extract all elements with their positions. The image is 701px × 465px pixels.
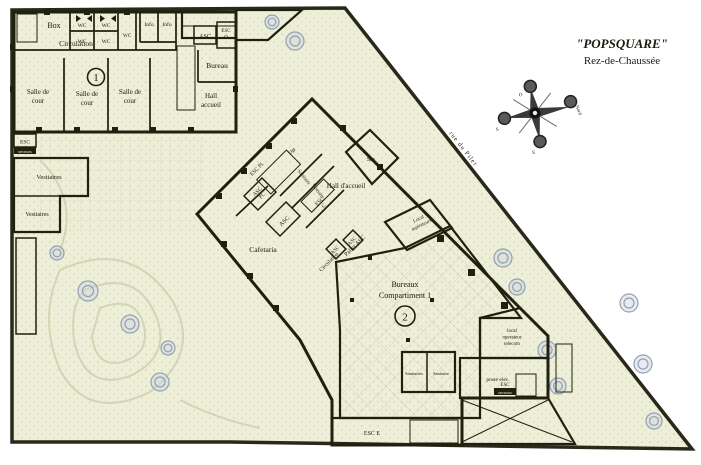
room-label-sas: Sas — [367, 157, 376, 163]
tree — [620, 294, 638, 312]
room-label-vestiaires: Vestiaires — [36, 174, 62, 181]
room-label-secours: secours — [18, 149, 32, 154]
room-label-info: Info — [162, 21, 171, 28]
plaza-paving — [38, 140, 206, 232]
tree — [494, 249, 512, 267]
tree — [161, 341, 175, 355]
room-label-sanitaires: Sanitaires — [405, 371, 423, 376]
tree — [509, 279, 525, 295]
tree — [265, 15, 279, 29]
room-label-hall-daccueil: Hall d'accueil — [327, 182, 365, 190]
compartment-number: 1 — [93, 72, 99, 84]
room-label-esc-e: ESC E — [364, 431, 381, 437]
compass-label-ouest: O — [519, 93, 524, 99]
tree — [78, 281, 98, 301]
room-label-wc: WC — [102, 39, 111, 45]
room-label-box: Box — [47, 21, 60, 30]
compass-label-sud: S — [496, 128, 500, 133]
tree — [151, 373, 169, 391]
room-label-sanitaire: Sanitaire — [433, 371, 449, 376]
compass-label-nord: Nord — [573, 105, 582, 117]
site-plan-svg: Box Circulation WC WC WC WC WC Info Info… — [0, 0, 701, 465]
room-label-vestiaires: Vestiaires — [25, 212, 49, 218]
room-label-asc: ASC — [199, 34, 211, 40]
floor-plan: Box Circulation WC WC WC WC WC Info Info… — [0, 0, 701, 465]
tree — [286, 32, 304, 50]
room-label-info: Info — [144, 21, 153, 28]
compass-rose: O S E Nord — [489, 72, 588, 161]
room-label-wc: WC — [78, 39, 87, 45]
room-label-secours: secours — [498, 390, 512, 395]
tree — [121, 315, 139, 333]
room-label-circulation: Circulation — [59, 39, 93, 48]
room-label-bureau: Bureau — [206, 61, 228, 70]
plan-subtitle: Rez-de-Chaussée — [584, 55, 660, 67]
room-label-esc: ESC — [500, 383, 510, 388]
tree — [50, 246, 64, 260]
compass-label-est: E — [532, 151, 536, 156]
room-label-wc: WC — [78, 23, 87, 29]
room-label-esc: ESC — [20, 140, 30, 146]
tree — [646, 413, 662, 429]
room-label-cafetaria: Cafetaria — [249, 245, 277, 254]
plan-title: "POPSQUARE" — [576, 36, 668, 51]
room-label-wc: WC — [123, 34, 132, 39]
room-label-wc: WC — [102, 23, 111, 29]
tree — [634, 355, 652, 373]
compartment-number: 2 — [402, 312, 408, 324]
